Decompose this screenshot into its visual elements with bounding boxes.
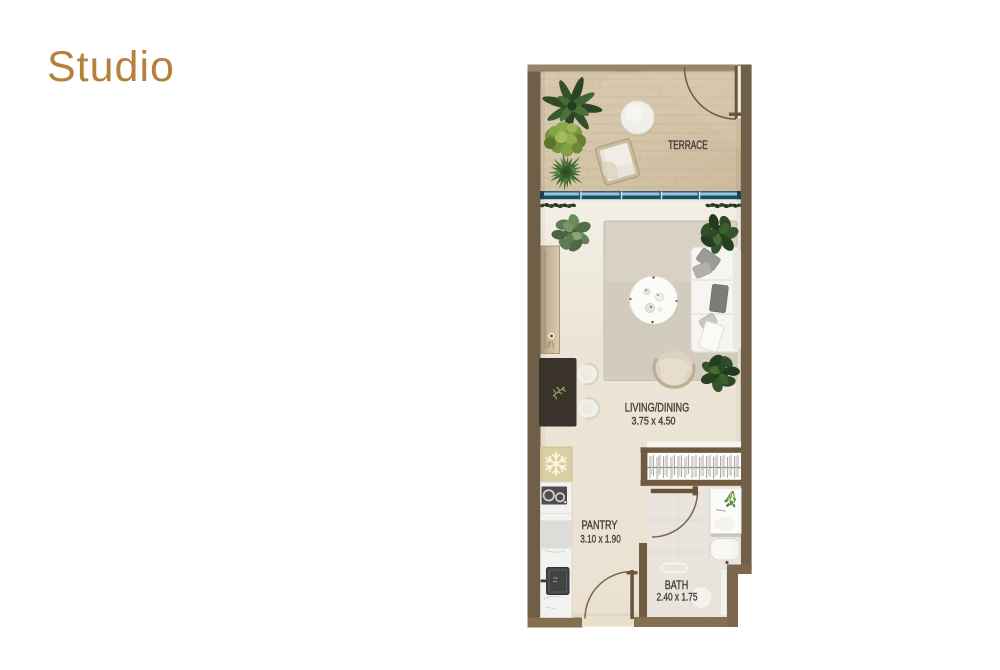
svg-text:2.40 x 1.75: 2.40 x 1.75 <box>657 592 698 604</box>
svg-text:3.75 x 4.50: 3.75 x 4.50 <box>632 416 676 428</box>
svg-text:BATH: BATH <box>665 578 689 592</box>
svg-text:LIVING/DINING: LIVING/DINING <box>625 401 690 415</box>
svg-text:3.10 x 1.90: 3.10 x 1.90 <box>580 534 621 546</box>
svg-text:PANTRY: PANTRY <box>582 518 618 532</box>
svg-text:TERRACE: TERRACE <box>668 139 708 152</box>
